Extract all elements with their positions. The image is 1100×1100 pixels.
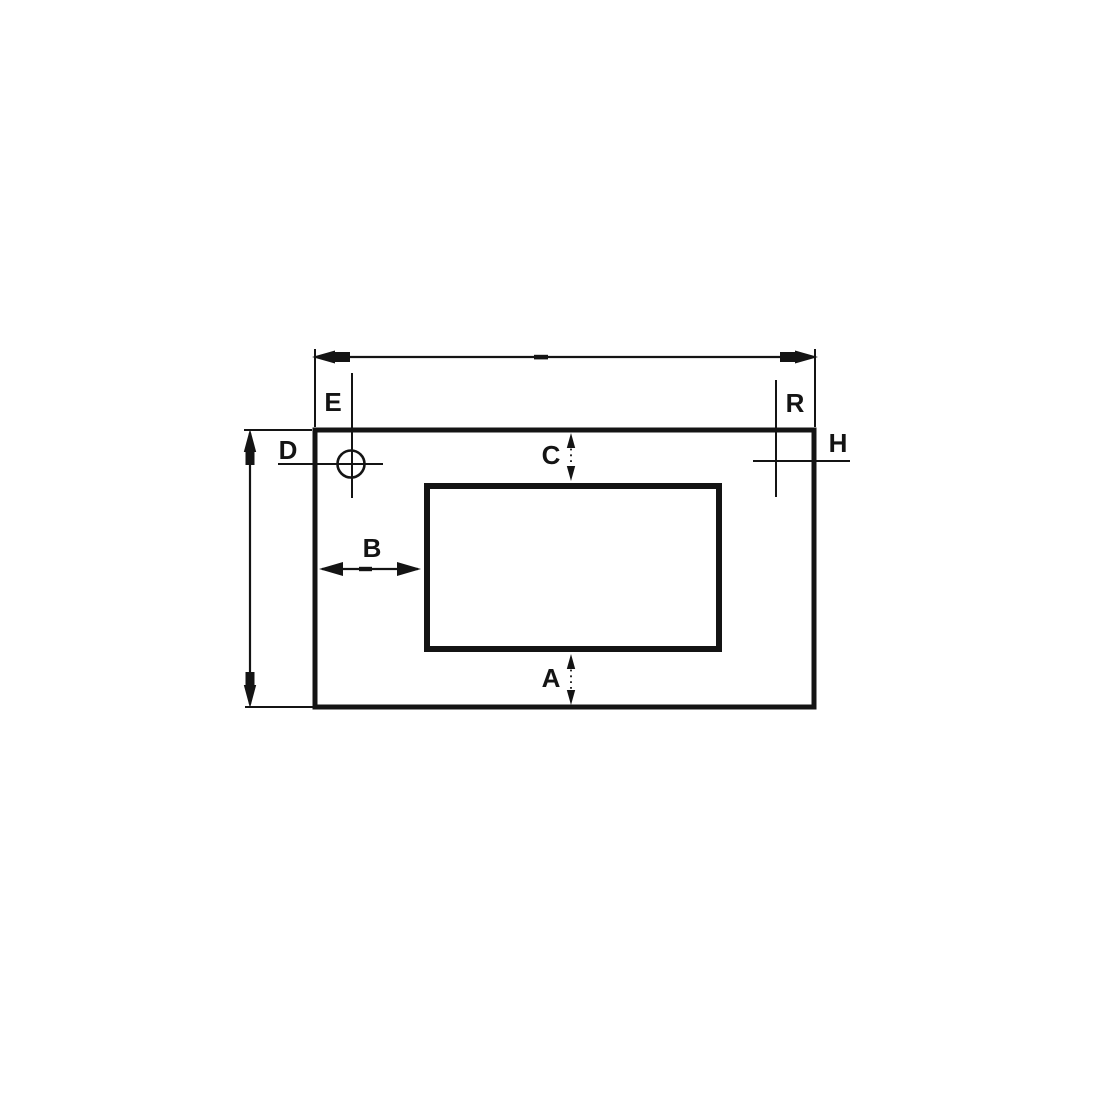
a-dim-bottom-arrow xyxy=(567,690,575,705)
b-dim-left-arrow xyxy=(319,562,343,576)
c-dim-top-arrow xyxy=(567,433,575,448)
c-dim-bottom-arrow xyxy=(567,466,575,481)
panel-cutout-dimension-diagram: D B C A E R H xyxy=(0,0,1100,1100)
top-dim-mid-tick xyxy=(534,355,548,360)
top-dim-left-arrow-stub xyxy=(335,352,350,362)
label-mark-H: H xyxy=(829,428,848,458)
label-left-gap-B: B xyxy=(363,533,382,563)
b-dim-mid-tick xyxy=(359,567,372,571)
left-dim-top-arrow-stub xyxy=(246,452,255,465)
label-mark-R: R xyxy=(786,388,805,418)
diagram-canvas: D B C A E R H xyxy=(0,0,1100,1100)
left-dim-bottom-arrow xyxy=(244,685,256,708)
cutout-rect xyxy=(427,486,719,649)
left-dim-bottom-arrow-stub xyxy=(246,672,255,685)
label-bottom-gap-A: A xyxy=(542,663,561,693)
a-dim-top-arrow xyxy=(567,654,575,669)
left-dim-top-arrow xyxy=(244,429,256,452)
label-hole-E: E xyxy=(324,387,341,417)
label-top-gap-C: C xyxy=(542,440,561,470)
label-left-height-D: D xyxy=(279,435,298,465)
b-dim-right-arrow xyxy=(397,562,421,576)
top-dim-right-arrow-stub xyxy=(780,352,795,362)
